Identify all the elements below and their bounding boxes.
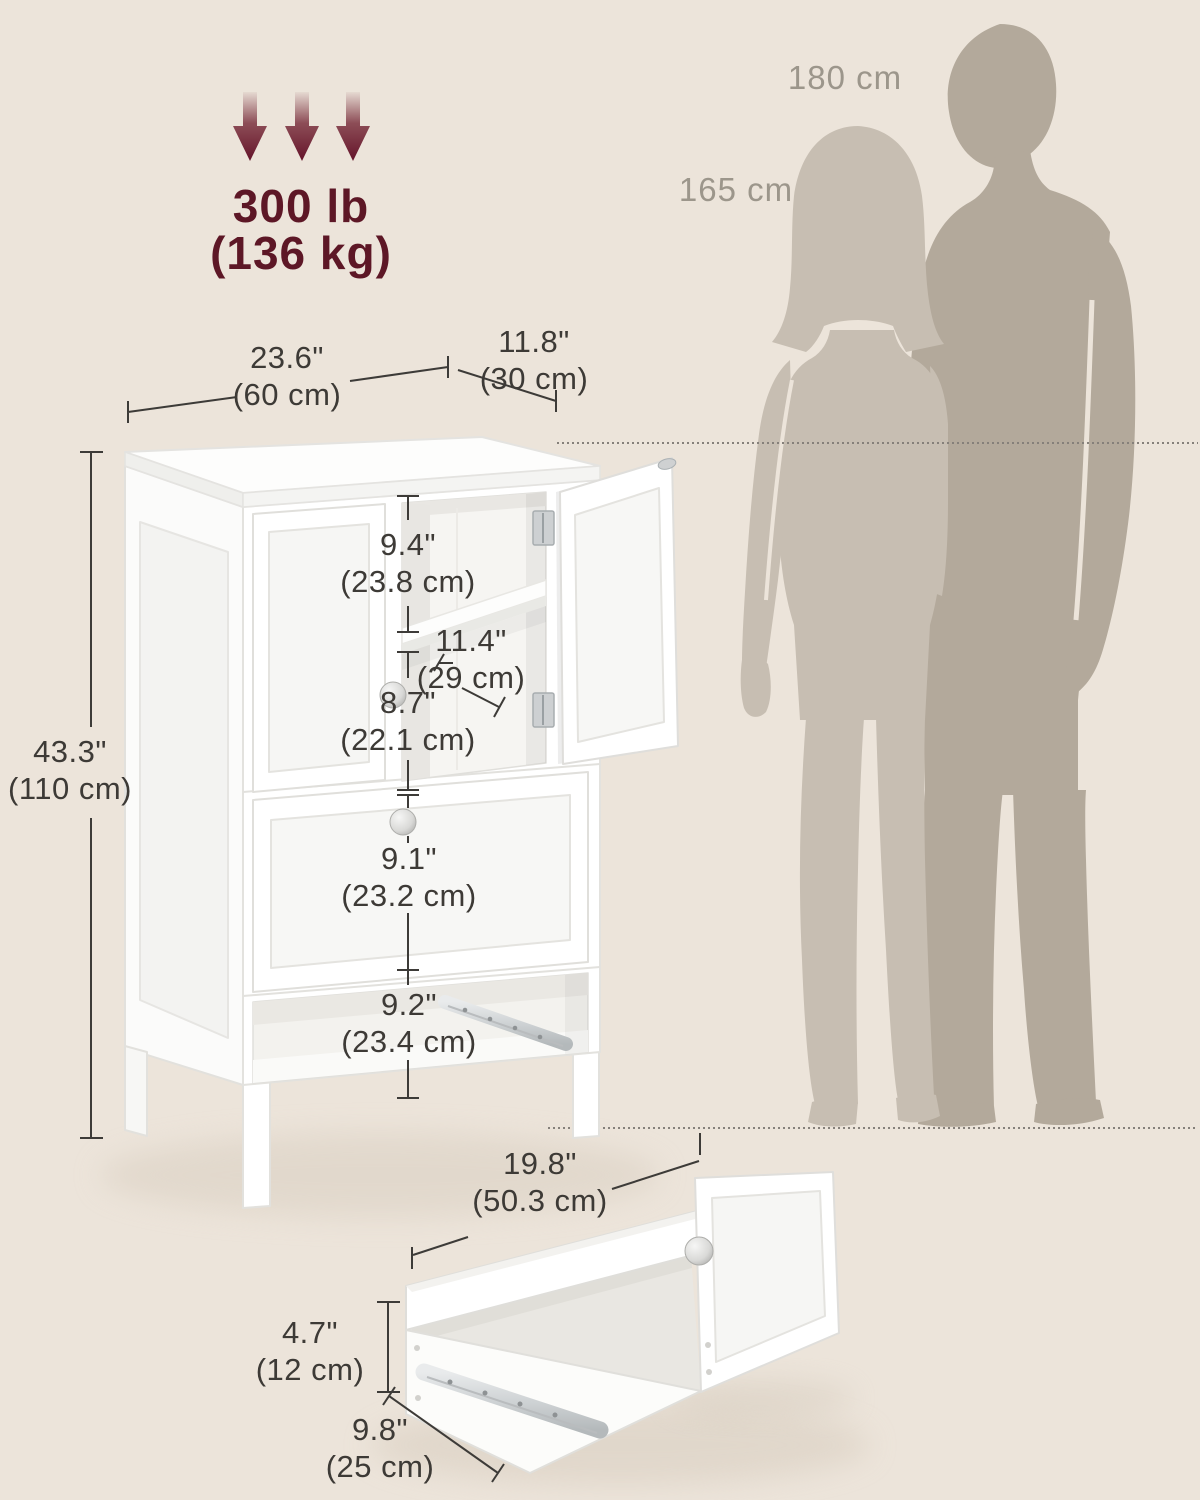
drawer-height-dim-label: 4.7"(12 cm) xyxy=(256,1314,365,1388)
weight-arrows-icon xyxy=(233,92,370,161)
open-compartment-dim-label: 9.2"(23.4 cm) xyxy=(341,986,476,1060)
drawer-section-dim-label: 9.1"(23.2 cm) xyxy=(341,840,476,914)
weight-capacity-lb: 300 lb xyxy=(233,182,369,230)
man-height-label: 180 cm xyxy=(788,60,902,96)
upper-shelf-dim-label: 9.4"(23.8 cm) xyxy=(340,526,475,600)
woman-height-label: 165 cm xyxy=(679,172,793,208)
drawer-knob-icon xyxy=(390,809,416,835)
depth-dim-label: 11.8"(30 cm) xyxy=(480,323,589,397)
drawer-height-dim-line xyxy=(377,1302,400,1392)
drawer-width-dim-label: 19.8"(50.3 cm) xyxy=(472,1145,607,1219)
product-dimension-diagram: 300 lb (136 kg) 180 cm 165 cm 23.6"(60 c… xyxy=(0,0,1200,1500)
standalone-drawer-knob-icon xyxy=(685,1237,713,1265)
woman-silhouette xyxy=(741,126,948,1126)
diagram-artwork xyxy=(0,0,1200,1500)
weight-capacity-kg: (136 kg) xyxy=(210,229,392,277)
width-dim-label: 23.6"(60 cm) xyxy=(233,339,342,413)
lower-shelf-dim-label: 8.7"(22.1 cm) xyxy=(340,684,475,758)
drawer-depth-dim-label: 9.8"(25 cm) xyxy=(326,1411,435,1485)
height-dim-label: 43.3"(110 cm) xyxy=(8,733,132,807)
